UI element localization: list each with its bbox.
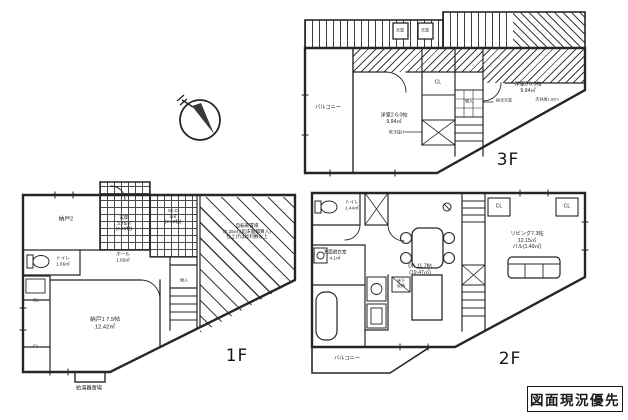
priority-stamp: 図面現況優先 <box>527 386 623 412</box>
room-label-senmen: 洗面脱衣室 4.1㎡ <box>323 250 346 261</box>
water-heater-box <box>75 372 105 382</box>
room-label-hall: ホール 1.65㎡ <box>116 252 130 263</box>
room-label-dk: DK 11.7帖 (19.47㎡) <box>408 264 432 277</box>
floor-label-3f: 3F <box>497 150 520 170</box>
toilet-icon-1f <box>27 255 49 268</box>
room-label-monoire-3f: 物入 <box>465 100 473 105</box>
floor-label-2f: 2F <box>499 349 522 369</box>
room-label-yoshitsu3: 洋室3 6.0帖 9.94㎡ <box>514 82 541 95</box>
label-saiko-tenmado: 採光天窓 <box>496 99 512 104</box>
floorplan-3f-lines <box>300 5 595 180</box>
kitchen-island-icon <box>412 275 442 320</box>
room-label-monoire-1f: 物入 <box>180 279 188 284</box>
room-label-bicycle: 自転車置場 (7.25㎡)(延床面積算入) 仕上げは砂利敷以上 <box>223 224 270 241</box>
label-skylight-1: 天窓 <box>396 29 404 34</box>
room-label-living: リビング7.3帖 12.15㎡ バル(1.49㎡) <box>510 232 543 251</box>
toilet-icon-2f <box>315 201 337 213</box>
room-label-toilet-1f: トイレ 1.66㎡ <box>56 256 70 267</box>
closet-label-3f: CL <box>435 80 442 86</box>
stairs-2f <box>462 193 485 331</box>
kitchen-counter-icon <box>367 277 386 328</box>
closet-label-1f-b: CL <box>33 344 39 350</box>
sofa-icon <box>508 257 560 278</box>
stairs-1f <box>170 257 197 330</box>
label-water-heater: 給湯器置場 <box>76 386 102 392</box>
label-floor-storage: 床下 収納 <box>397 279 405 289</box>
compass-north-icon <box>172 92 228 148</box>
floorplan-2f-lines <box>300 180 595 395</box>
label-skylight-2: 天窓 <box>421 29 429 34</box>
void-x-mark <box>422 120 455 145</box>
vent-icon <box>443 203 451 211</box>
room-label-genkan: 玄関 3.75㎡ (2.26帖) <box>116 216 133 233</box>
room-label-balcony-3f: バルコニー <box>315 105 341 111</box>
stairs-3f <box>455 125 483 141</box>
room-label-nando2: 納戸2 <box>59 217 74 224</box>
room-label-balcony-2f: バルコニー <box>334 356 360 362</box>
closet-label-2f-a: CL <box>496 204 503 210</box>
label-fukinuke: 吹き抜け <box>389 131 405 136</box>
room-label-toilet-2f: トイレ 1.44㎡ <box>345 200 359 211</box>
closet-label-2f-b: CL <box>564 204 571 210</box>
label-ceiling-height: 天井高1.82m <box>535 98 558 103</box>
floorplan-sheet: 納戸2 玄関 3.75㎡ (2.26帖) S.I.C 4㎡ (2.42帖) トイ… <box>0 0 628 420</box>
room-label-nando1: 納戸1 7.5帖 12.42㎡ <box>90 317 120 331</box>
closet-label-1f-a: CL <box>33 298 39 304</box>
bathtub-icon <box>316 292 337 340</box>
floorplan-1f-lines <box>10 180 300 400</box>
room-label-sic: S.I.C 4㎡ (2.42帖) <box>165 209 182 226</box>
floor-label-1f: 1F <box>226 346 249 366</box>
room-label-yoshitsu2: 洋室2 6.0帖 9.94㎡ <box>380 113 407 126</box>
dining-table-icon <box>401 228 455 268</box>
